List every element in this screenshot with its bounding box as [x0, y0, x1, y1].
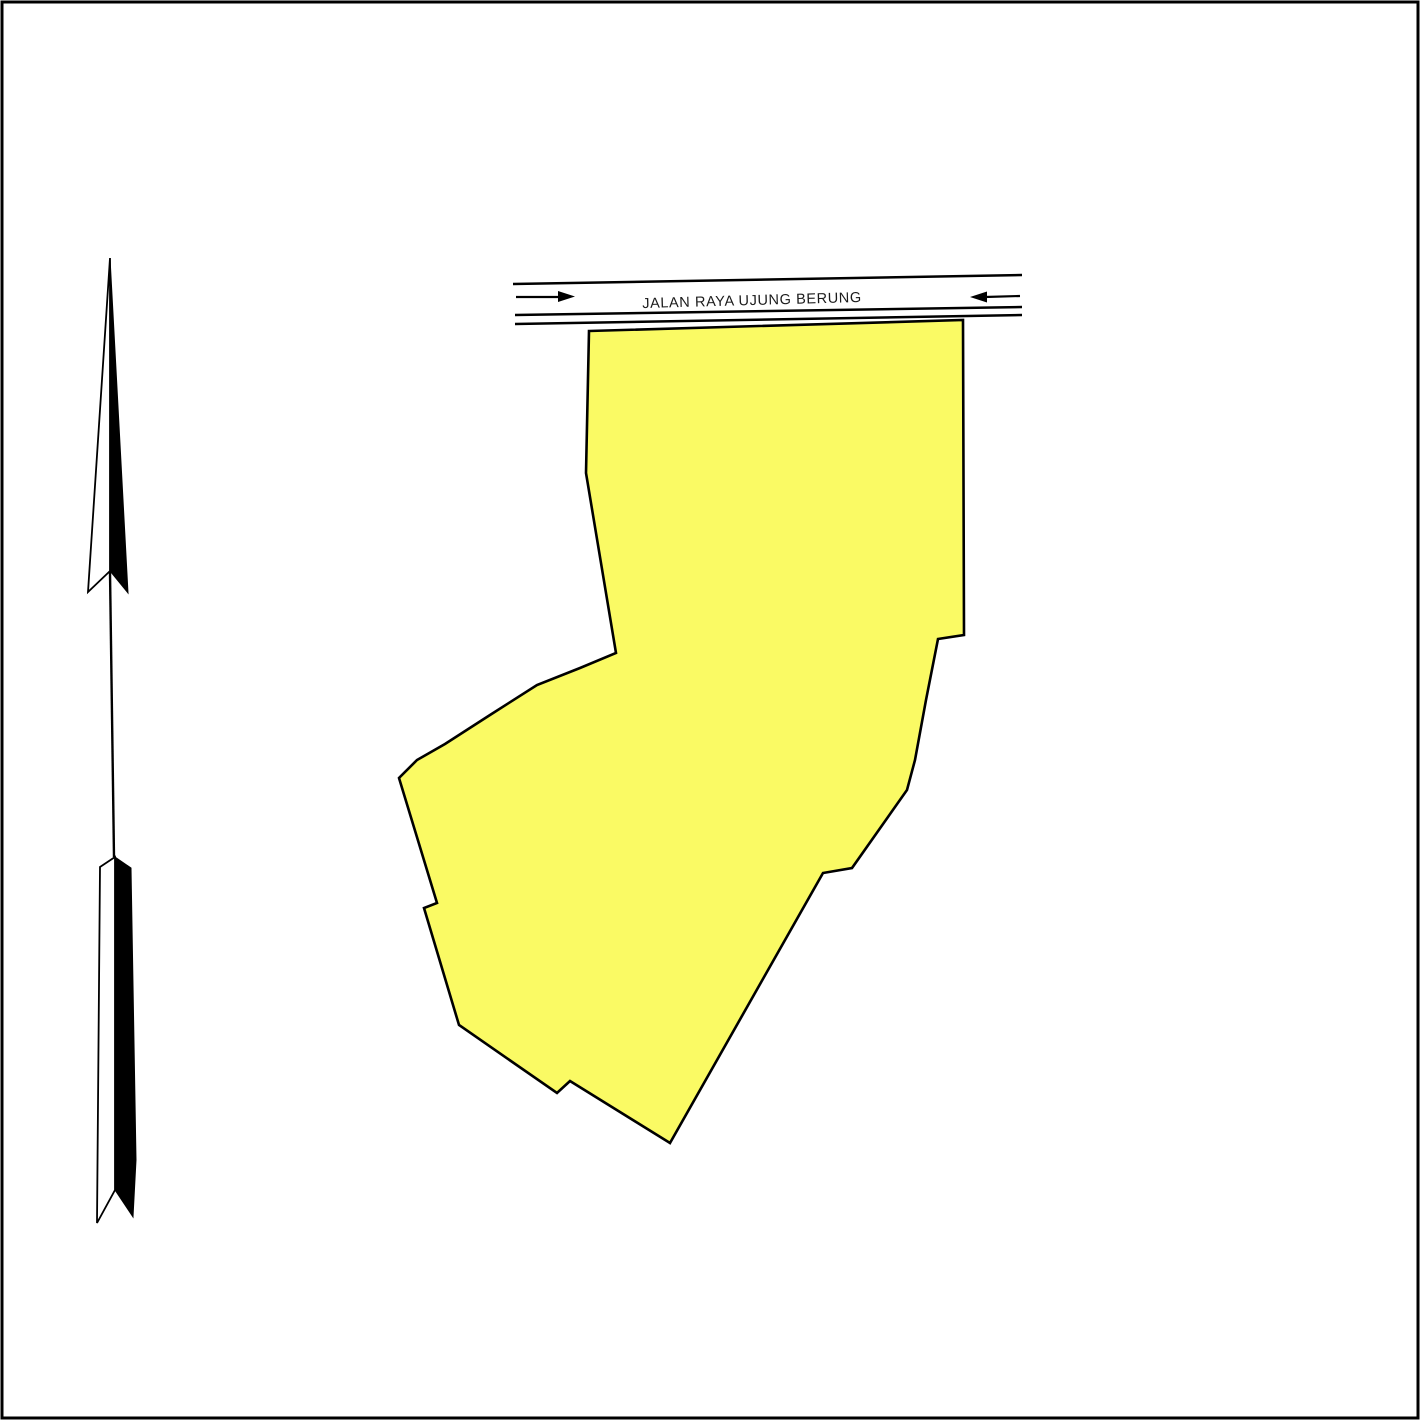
road-name-label: JALAN RAYA UJUNG BERUNG	[642, 290, 862, 312]
north-arrow-tail-light-half	[97, 857, 115, 1223]
north-arrow-icon	[88, 258, 136, 1223]
site-plan-svg: JALAN RAYA UJUNG BERUNG	[0, 0, 1421, 1421]
north-arrow-head-dark-half	[110, 258, 128, 593]
north-arrow-head-light-half	[88, 258, 110, 592]
road-top-line	[513, 275, 1022, 284]
eastbound-arrow-head	[558, 291, 575, 302]
parcel-polygon	[399, 320, 964, 1143]
westbound-arrow-head	[970, 292, 987, 303]
road-group: JALAN RAYA UJUNG BERUNG	[513, 275, 1022, 324]
eastbound-arrow-icon	[516, 291, 575, 302]
north-arrow-shaft	[110, 572, 114, 857]
westbound-arrow-icon	[970, 292, 1020, 303]
map-canvas: JALAN RAYA UJUNG BERUNG	[0, 0, 1421, 1421]
north-arrow-tail-dark-half	[115, 857, 136, 1217]
westbound-arrow-shaft	[985, 296, 1020, 297]
